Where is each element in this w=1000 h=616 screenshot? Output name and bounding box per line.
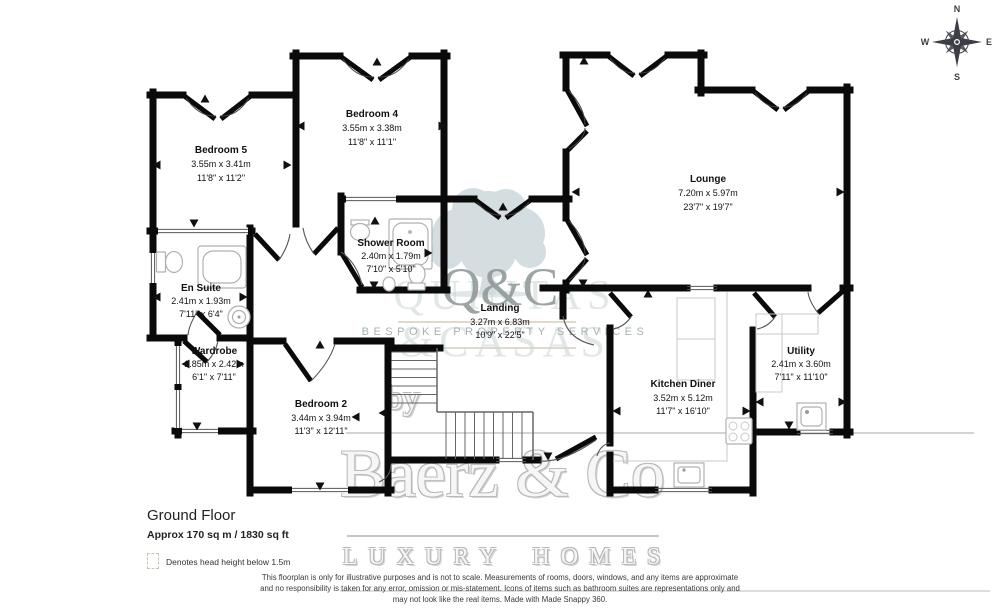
compass-east-label: E	[986, 37, 992, 47]
svg-text:3.52m x 5.12m: 3.52m x 5.12m	[653, 393, 713, 403]
hob-icon	[726, 418, 752, 444]
room-label-bedroom-2: Bedroom 2 3.44m x 3.94m 11'3" x 12'11"	[291, 399, 351, 436]
door-kitchen-from-landing	[610, 293, 631, 329]
svg-text:3.27m x 6.83m: 3.27m x 6.83m	[470, 317, 530, 327]
svg-text:Utility: Utility	[787, 346, 815, 357]
staircase	[392, 348, 534, 460]
window-wardrobe-west-1	[175, 346, 182, 384]
svg-text:3.44m x 3.94m: 3.44m x 3.94m	[291, 413, 351, 423]
svg-text:Bedroom 4: Bedroom 4	[346, 109, 399, 120]
sink-small-shower-room	[383, 277, 395, 291]
window-wardrobe-west-2	[175, 390, 182, 428]
bay-window-lounge-north-2	[752, 90, 810, 110]
shower-ensuite	[228, 306, 250, 328]
sink-utility	[797, 403, 826, 430]
sink-kitchen	[674, 463, 704, 487]
fixtures	[157, 219, 827, 487]
toilet-ensuite	[157, 252, 183, 273]
svg-text:Bedroom 5: Bedroom 5	[195, 145, 248, 156]
door-utility-rear	[808, 291, 843, 313]
svg-text:11'8" x 11'1": 11'8" x 11'1"	[348, 137, 396, 147]
bay-window-bedroom5	[183, 95, 252, 119]
compass-south-label: S	[954, 72, 960, 82]
svg-text:1.85m x 2.42m: 1.85m x 2.42m	[184, 359, 244, 369]
window-wardrobe-south	[182, 428, 218, 435]
svg-text:6'1" x 7'11": 6'1" x 7'11"	[192, 372, 236, 382]
svg-text:Lounge: Lounge	[690, 174, 727, 185]
bay-window-lounge-north-1	[607, 55, 668, 76]
room-label-wardrobe: Wardrobe 1.85m x 2.42m 6'1" x 7'11"	[184, 346, 244, 382]
window-bedroom5-south	[158, 228, 248, 235]
room-label-landing: Landing 3.27m x 6.83m 10'9" x 22'5"	[470, 303, 530, 340]
window-lounge-south	[687, 286, 717, 289]
svg-text:Bedroom 2: Bedroom 2	[295, 399, 348, 410]
svg-text:7'10" x 5'10": 7'10" x 5'10"	[366, 264, 415, 274]
window-utility-south	[797, 430, 833, 433]
door-bedroom4	[303, 228, 338, 254]
window-ensuite-west	[150, 253, 157, 283]
svg-text:2.41m x 1.93m: 2.41m x 1.93m	[171, 296, 231, 306]
window-shower-north	[346, 196, 396, 203]
svg-text:Kitchen Diner: Kitchen Diner	[650, 379, 715, 390]
svg-text:3.55m x 3.38m: 3.55m x 3.38m	[342, 123, 402, 133]
svg-text:2.41m x 3.60m: 2.41m x 3.60m	[771, 359, 831, 369]
room-labels: Bedroom 5 3.55m x 3.41m 11'8" x 11'2" Be…	[171, 109, 831, 436]
compass-west-label: W	[921, 37, 930, 47]
bath-ensuite	[198, 246, 246, 288]
svg-text:11'3" x 12'11": 11'3" x 12'11"	[294, 426, 347, 436]
svg-text:11'7" x 16'10": 11'7" x 16'10"	[656, 406, 710, 416]
svg-text:2.40m x 1.79m: 2.40m x 1.79m	[361, 251, 421, 261]
room-label-lounge: Lounge 7.20m x 5.97m 23'7" x 19'7"	[678, 174, 738, 212]
room-label-shower-room: Shower Room 2.40m x 1.79m 7'10" x 5'10"	[357, 238, 424, 274]
svg-text:7'11" x 11'10": 7'11" x 11'10"	[774, 372, 827, 382]
door-kitchen-utility	[754, 293, 775, 329]
window-kitchen-south	[655, 488, 712, 491]
svg-text:3.55m x 3.41m: 3.55m x 3.41m	[191, 159, 251, 169]
door-landing-stub	[563, 316, 594, 345]
compass-north-label: N	[954, 4, 961, 14]
svg-text:7'11" x 6'4": 7'11" x 6'4"	[179, 309, 223, 319]
double-door-lounge-west-2	[566, 218, 587, 283]
compass-rose-icon: N E S W	[921, 4, 992, 82]
svg-text:Shower Room: Shower Room	[357, 238, 424, 249]
svg-text:Wardrobe: Wardrobe	[191, 346, 238, 357]
svg-text:En Suite: En Suite	[181, 283, 221, 294]
floorplan-drawing: Bedroom 5 3.55m x 3.41m 11'8" x 11'2" Be…	[0, 0, 1000, 616]
floorplan-page: QUINTAS &CASAS Q&C BESPOKE PROPERTY SERV…	[0, 0, 1000, 616]
svg-text:7.20m x 5.97m: 7.20m x 5.97m	[678, 188, 738, 198]
svg-text:11'8" x 11'2": 11'8" x 11'2"	[197, 173, 245, 183]
svg-text:23'7" x 19'7": 23'7" x 19'7"	[683, 202, 732, 212]
room-label-bedroom-4: Bedroom 4 3.55m x 3.38m 11'8" x 11'1"	[342, 109, 402, 147]
door-bedroom2	[285, 344, 335, 381]
room-label-utility: Utility 2.41m x 3.60m 7'11" x 11'10"	[771, 346, 831, 382]
door-shower-room	[341, 252, 362, 287]
room-label-bedroom-5: Bedroom 5 3.55m x 3.41m 11'8" x 11'2"	[191, 145, 251, 183]
double-door-lounge-west-1	[566, 88, 587, 152]
svg-text:Landing: Landing	[481, 303, 520, 314]
door-bedroom5	[255, 234, 290, 260]
svg-text:10'9" x 22'5": 10'9" x 22'5"	[475, 330, 524, 340]
room-label-kitchen-diner: Kitchen Diner 3.52m x 5.12m 11'7" x 16'1…	[650, 379, 715, 416]
